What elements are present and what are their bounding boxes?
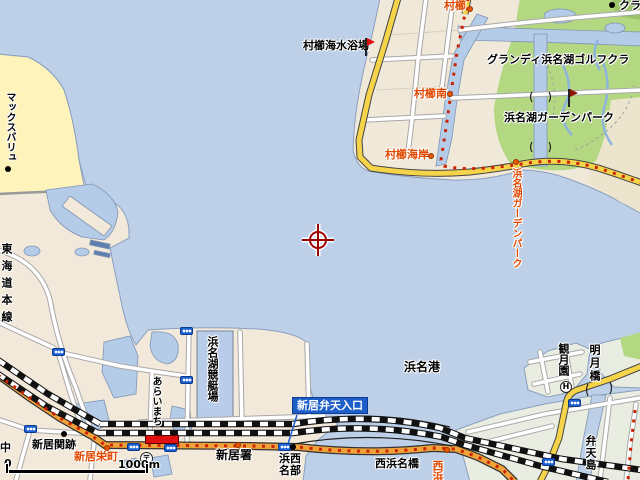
label-tokaido-line: 東海道本線	[0, 243, 12, 328]
bus-stop-dot	[513, 159, 519, 165]
traffic-signal-icon	[180, 327, 193, 335]
bus-stop-nishihama-clip: 西浜	[431, 460, 447, 480]
poi-dot-maxvalu	[5, 166, 11, 172]
bus-stop-murakushi-kaigan: 村櫛海岸	[385, 149, 429, 161]
label-kyoteijo: 浜名湖競艇場	[206, 336, 218, 402]
benten-entrance-sign: 新居弁天入口	[292, 397, 368, 414]
bus-stop-dot	[104, 445, 110, 451]
hamana-seibu-row2: 名部	[279, 465, 301, 477]
poi-dot-seibu	[290, 444, 296, 450]
map-container[interactable]: 村櫛海水浴場 村櫛 村櫛南 村櫛海岸 グランディ浜名湖ゴルフクラ クラ 浜名湖ガ…	[0, 0, 640, 480]
bus-stop-nishihama: 西浜	[431, 460, 443, 480]
label-araimachi: あらいまち	[149, 376, 161, 426]
poi-dot-sekiato	[61, 431, 67, 437]
hotel-icon: H	[560, 381, 572, 393]
traffic-signal-icon	[127, 443, 140, 451]
scale-bar-line	[6, 470, 148, 473]
label-meigetsu-bridge: 明月橋	[588, 344, 600, 383]
map-center-marker	[300, 222, 336, 258]
label-arai-sekiato: 新居関跡	[32, 439, 76, 451]
scale-bar: 0 1000m	[2, 457, 167, 479]
label-hamana-seibu: 浜西 名部	[279, 453, 301, 477]
label-arai-police: 新居署	[216, 449, 252, 461]
label-clubhouse-partial: クラ	[619, 0, 640, 12]
label-bentenjima: 弁天島	[584, 435, 596, 471]
beach-flag-icon	[364, 38, 374, 56]
bus-stop-murakushi-minami: 村櫛南	[414, 88, 447, 100]
label-kangetsuen: 観月園	[557, 343, 569, 376]
traffic-signal-icon	[568, 399, 581, 407]
bus-stop-garden-park: 浜名湖ガーデンパーク	[509, 168, 521, 268]
traffic-signal-icon	[52, 348, 65, 356]
bus-stop-dot	[447, 91, 453, 97]
scale-bar-tick	[6, 464, 8, 473]
araimachi-station-rect	[145, 435, 179, 444]
bus-stop-dot	[467, 6, 473, 12]
label-nishi-hamana-bridge: 西浜名橋	[375, 458, 419, 470]
label-murakushi-beach: 村櫛海水浴場	[303, 40, 369, 52]
label-golf-club: グランディ浜名湖ゴルフクラ	[487, 54, 629, 66]
label-garden-park: 浜名湖ガーデンパーク	[504, 112, 614, 124]
label-naka-partial: 中	[0, 442, 11, 454]
traffic-signal-icon	[542, 458, 555, 466]
traffic-signal-icon	[24, 425, 37, 433]
bus-stop-dot	[444, 447, 450, 453]
traffic-signal-icon	[180, 376, 193, 384]
hotel-mark: H	[563, 383, 570, 391]
bus-stop-dot	[428, 153, 434, 159]
scale-bar-tick	[146, 464, 148, 473]
bus-stop-dot	[235, 442, 241, 448]
label-hamana-port: 浜名港	[404, 361, 440, 373]
traffic-signal-icon	[164, 444, 177, 452]
golf-flag-icon	[567, 89, 577, 107]
bus-stop-murakushi: 村櫛	[444, 0, 466, 12]
poi-dot-clubhouse	[609, 2, 615, 8]
label-max-valu: マックスバリュ	[3, 92, 15, 162]
